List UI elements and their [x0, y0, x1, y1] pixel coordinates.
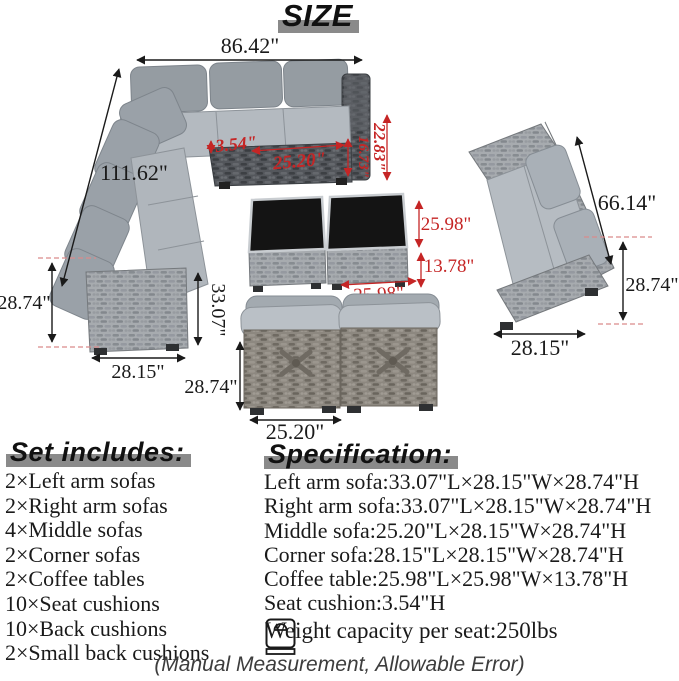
list-item: 2×Corner sofas: [5, 543, 209, 568]
specification-header-text: Specification:: [268, 439, 452, 470]
dim-corner-inner: 16.73": [355, 136, 371, 178]
weight-capacity-text: Weight capacity per seat:250lbs: [265, 618, 558, 644]
dim-loveseat-depth: 28.15": [511, 335, 569, 360]
list-item: 4×Middle sofas: [5, 518, 209, 543]
set-includes-header-text: Set includes:: [10, 437, 185, 468]
set-includes-list: 2×Left arm sofas 2×Right arm sofas 4×Mid…: [5, 469, 209, 666]
list-item: 2×Coffee tables: [5, 567, 209, 592]
specification-list: Left arm sofa:33.07"L×28.15"W×28.74"H Ri…: [264, 470, 651, 616]
list-item: 2×Left arm sofas: [5, 469, 209, 494]
footnote: (Manual Measurement, Allowable Error): [0, 653, 679, 677]
dim-sectional-top-width: 86.42": [221, 33, 279, 58]
page-title-text: SIZE: [282, 0, 353, 34]
dim-sectional-arm-length: 33.07": [207, 283, 229, 336]
dim-sectional-depth: 28.15": [111, 361, 164, 383]
dim-table-height: 13.78": [424, 256, 475, 277]
list-item: 10×Seat cushions: [5, 592, 209, 617]
dim-sectional-side-length: 111.62": [100, 160, 168, 185]
coffee-tables-illustration: [249, 194, 408, 292]
specification-header: Specification:: [268, 439, 452, 470]
list-item: 10×Back cushions: [5, 617, 209, 642]
dim-loveseat-length: 66.14": [598, 190, 656, 215]
list-item: 2×Right arm sofas: [5, 494, 209, 519]
weight-capacity-row: Weight capacity per seat:250lbs: [265, 618, 558, 644]
dim-table-top-depth: 25.98": [421, 214, 472, 235]
dim-middle-width: 25.20": [266, 419, 324, 440]
dim-sectional-seat-height: 28.74": [0, 292, 51, 314]
dim-corner-back: 22.83": [370, 122, 389, 171]
size-diagram: 86.42" 111.62" 28.74" 28.15" 33.07" 3.54…: [0, 0, 679, 440]
set-includes-header: Set includes:: [10, 437, 185, 468]
spec-item: Coffee table:25.98"L×25.98"W×13.78"H: [264, 567, 651, 591]
page-title: SIZE: [282, 0, 353, 34]
dim-middle-height: 28.74": [184, 376, 237, 398]
spec-item: Left arm sofa:33.07"L×28.15"W×28.74"H: [264, 470, 651, 494]
spec-item: Seat cushion:3.54"H: [264, 591, 651, 615]
loveseat-illustration: [469, 122, 614, 330]
spec-item: Middle sofa:25.20"L×28.15"W×28.74"H: [264, 519, 651, 543]
middle-sofas-illustration: [241, 294, 441, 415]
dim-loveseat-seat-height: 28.74": [625, 274, 678, 296]
spec-item: Corner sofa:28.15"L×28.15"W×28.74"H: [264, 543, 651, 567]
weight-scale-icon: [265, 618, 296, 656]
spec-item: Right arm sofa:33.07"L×28.15"W×28.74"H: [264, 494, 651, 518]
product-size-infographic: 86.42" 111.62" 28.74" 28.15" 33.07" 3.54…: [0, 0, 679, 681]
